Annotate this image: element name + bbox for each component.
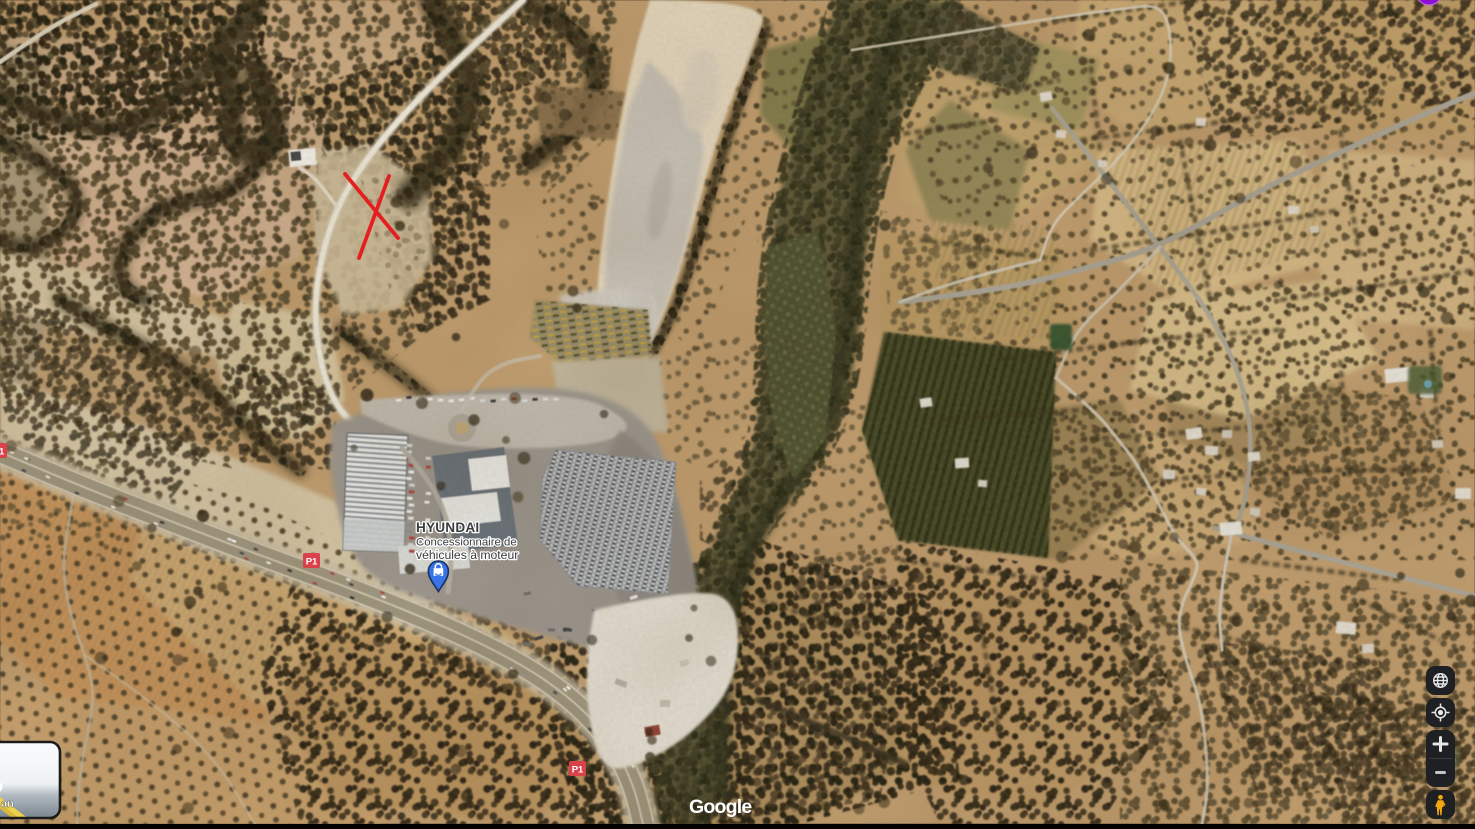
svg-text:Google: Google xyxy=(689,796,752,818)
svg-text:an: an xyxy=(1,798,14,810)
svg-text:P1: P1 xyxy=(0,447,5,458)
svg-text:Concessionnaire de: Concessionnaire de xyxy=(416,537,517,549)
svg-text:HYUNDAI: HYUNDAI xyxy=(416,520,479,535)
svg-text:P1: P1 xyxy=(572,765,584,776)
svg-text:P1: P1 xyxy=(306,557,318,568)
svg-text:véhicules à moteur: véhicules à moteur xyxy=(416,548,518,562)
